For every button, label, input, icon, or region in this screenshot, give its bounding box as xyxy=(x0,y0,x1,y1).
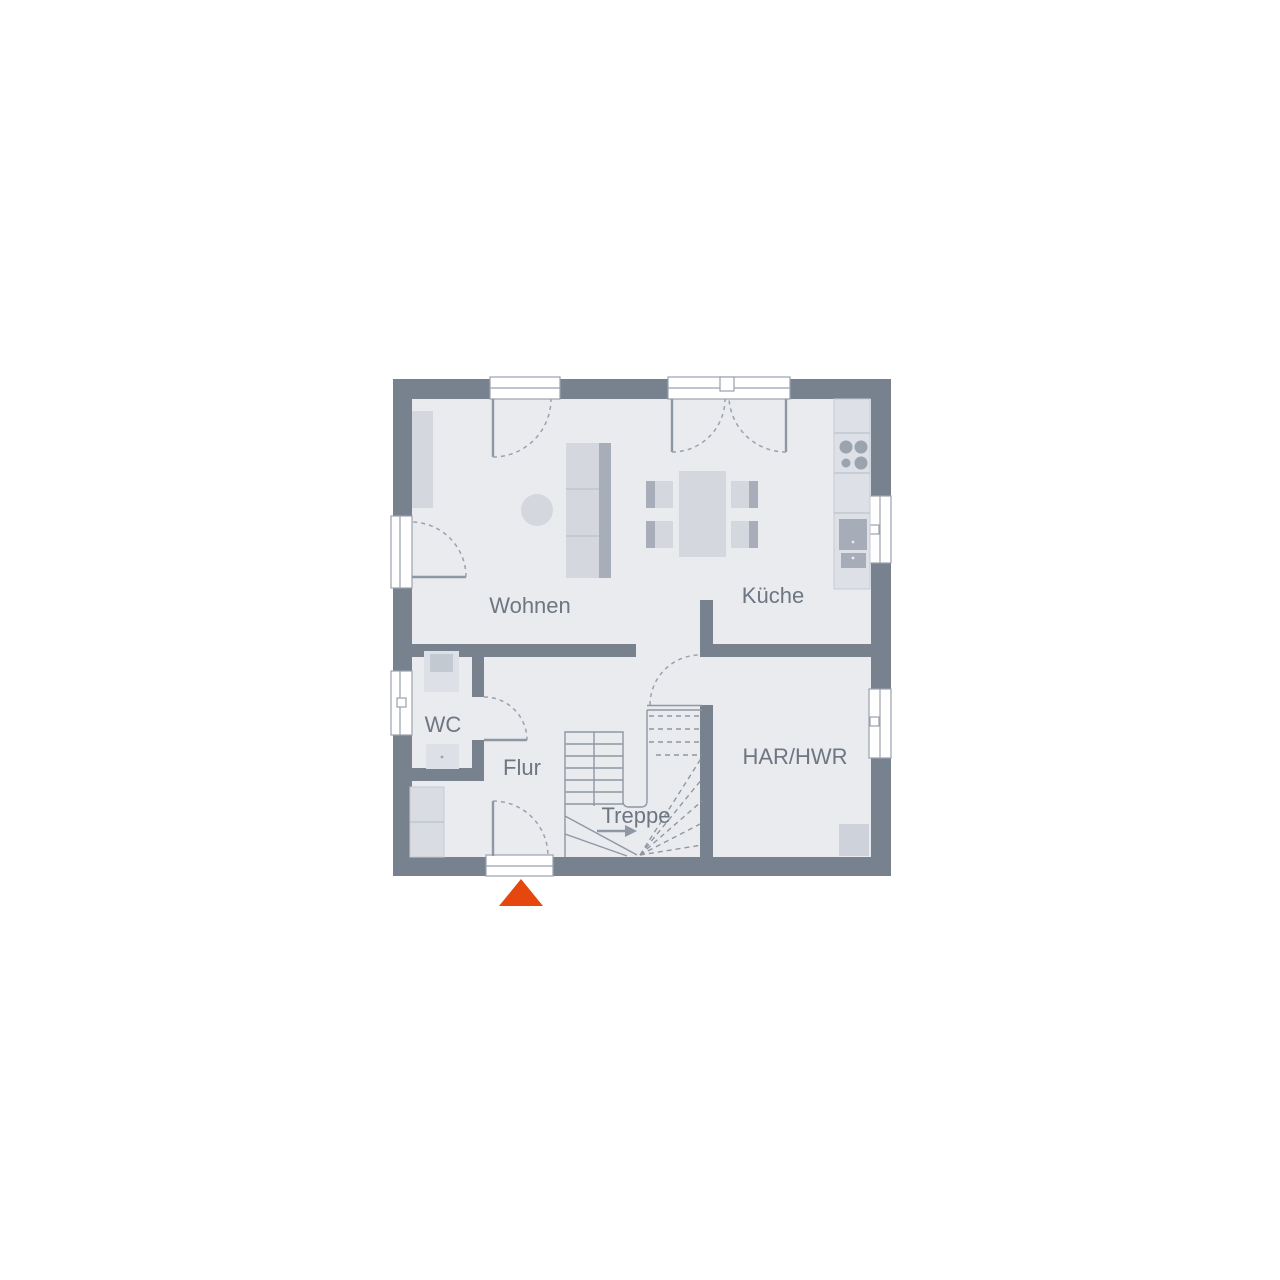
utility-appliance xyxy=(839,824,869,856)
room-label-wc: WC xyxy=(425,712,462,737)
burner xyxy=(855,457,868,470)
burner xyxy=(855,441,868,454)
oven-knob xyxy=(852,541,855,544)
chair-seat xyxy=(731,481,749,508)
floor-area xyxy=(412,399,871,857)
room-label-wohnen: Wohnen xyxy=(489,593,571,618)
wall-wc-right-lower xyxy=(472,740,484,771)
sofa xyxy=(566,443,611,578)
wall-kitchen-utility xyxy=(713,644,871,657)
chair-back xyxy=(749,481,758,508)
chair-back xyxy=(749,521,758,548)
room-label-flur: Flur xyxy=(503,755,541,780)
window-latch xyxy=(870,717,879,726)
wall-wc-bottom xyxy=(412,768,484,781)
burner xyxy=(842,459,851,468)
room-label-har-hwr: HAR/HWR xyxy=(742,744,847,769)
sideboard xyxy=(412,411,433,508)
oven xyxy=(839,519,867,550)
wall-kitchen-stub xyxy=(700,600,713,657)
kitchen-window xyxy=(869,496,891,563)
wall-wc-right-upper xyxy=(472,657,484,697)
hall-wardrobe xyxy=(410,787,444,857)
chair-seat xyxy=(655,521,673,548)
sofa-seat xyxy=(566,443,599,578)
toilet-detail xyxy=(441,756,444,759)
chair xyxy=(731,481,758,508)
kitchen-counter xyxy=(834,399,870,589)
room-label-treppe: Treppe xyxy=(602,803,671,828)
chair-seat xyxy=(655,481,673,508)
burner xyxy=(840,441,853,454)
chair xyxy=(646,481,673,508)
room-label-kueche: Küche xyxy=(742,583,804,608)
chair-back xyxy=(646,521,655,548)
wc-window xyxy=(391,671,412,735)
window-latch xyxy=(870,525,879,534)
chair xyxy=(731,521,758,548)
floor-plan-page: Wohnen Küche WC Flur Treppe HAR/HWR xyxy=(0,0,1280,1280)
drawer xyxy=(841,553,866,568)
utility-window xyxy=(869,689,891,758)
drawer-knob xyxy=(852,557,855,560)
chair-back xyxy=(646,481,655,508)
dining-table xyxy=(679,471,726,557)
wall-utility-left xyxy=(700,705,713,857)
floor-plan-drawing: Wohnen Küche WC Flur Treppe HAR/HWR xyxy=(0,0,1280,1280)
sink-basin xyxy=(430,654,453,672)
entrance-marker-triangle xyxy=(499,879,543,906)
window-latch xyxy=(397,698,406,707)
coffee-table xyxy=(521,494,553,526)
chair-seat xyxy=(731,521,749,548)
door-frame-latch xyxy=(720,377,734,391)
sofa-backrest xyxy=(599,443,611,578)
chair xyxy=(646,521,673,548)
door-frame xyxy=(391,516,412,588)
